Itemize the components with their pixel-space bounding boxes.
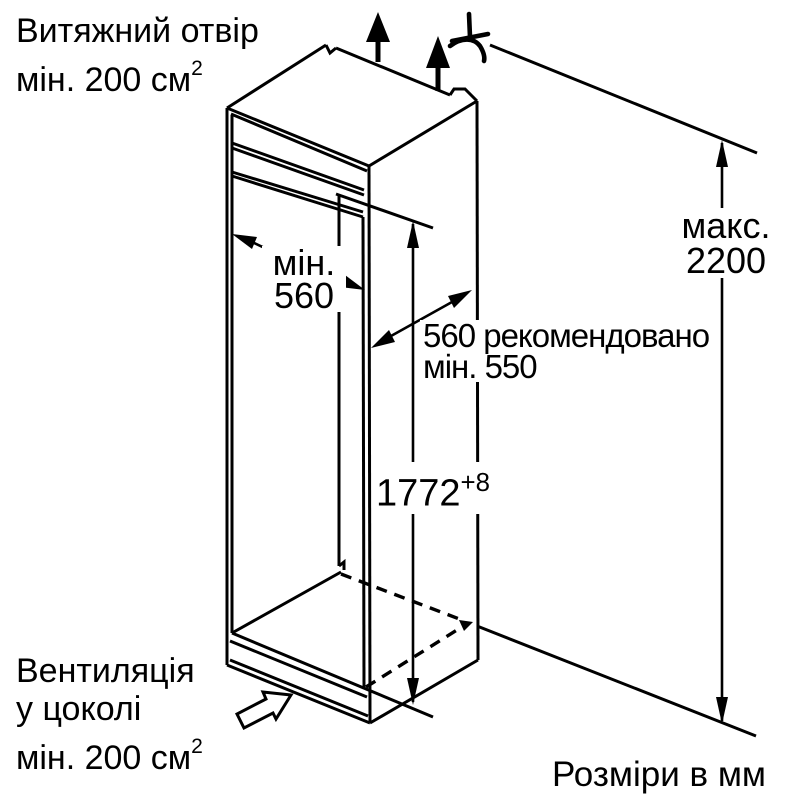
ventilation-block-arrow-icon	[237, 692, 291, 728]
top-face-back-left-notch	[326, 45, 336, 53]
front-bottom-outer-edge	[227, 665, 370, 723]
no-kink-icon	[450, 14, 488, 61]
installation-diagram: Витяжний отвір мін. 200 см2 мін. 560 560…	[0, 0, 800, 800]
plinth-vent-line3: мін. 200 см2	[16, 728, 203, 777]
label-niche-height: 1772+8	[372, 462, 494, 514]
niche-depth-line1: 560 рекомендовано	[423, 320, 709, 351]
top-face-front-edge	[227, 108, 369, 166]
no-kink-vertical-stroke	[469, 14, 470, 37]
squared-superscript: 2	[191, 735, 203, 758]
label-plinth-ventilation: Вентиляція у цоколі мін. 200 см2	[16, 652, 203, 777]
hidden-corner-arrowhead	[459, 620, 473, 631]
front-right-outer-edge	[369, 166, 370, 723]
width-arrow-left-icon	[232, 234, 257, 249]
no-kink-curve	[450, 40, 484, 61]
airflow-arrow-up-icon	[366, 12, 390, 42]
exhaust-opening-line1: Витяжний отвір	[16, 12, 259, 50]
interior-floor-left-edge	[232, 572, 341, 633]
label-niche-width: мін. 560	[262, 246, 346, 312]
niche-width-line2: 560	[262, 279, 346, 312]
exhaust-opening-line2: мін. 200 см2	[16, 50, 259, 99]
plinth-airflow	[237, 692, 291, 728]
label-exhaust-opening: Витяжний отвір мін. 200 см2	[16, 12, 259, 99]
front-right-inner-edge	[363, 217, 364, 688]
max-height-line2: 2200	[674, 243, 778, 278]
crossbar-bottom-line-a	[232, 172, 363, 212]
bottom-reference-line	[477, 626, 756, 736]
label-units-note: Розміри в мм	[552, 756, 766, 794]
label-max-height: макс. 2200	[674, 208, 778, 278]
depth-arrow-lower-icon	[371, 330, 395, 348]
niche-depth-line2: мін. 550	[423, 351, 709, 382]
niche-height-tolerance: +8	[461, 469, 490, 497]
top-face-back-right-notch	[450, 89, 477, 101]
top-reference-line	[490, 45, 757, 153]
plinth-vent-line1: Вентиляція	[16, 652, 203, 690]
reference-lines	[477, 45, 757, 736]
hidden-floor-back-edge	[341, 574, 462, 620]
top-face-right-edge	[369, 101, 477, 166]
squared-superscript: 2	[191, 57, 203, 80]
max-height-line1: макс.	[674, 208, 778, 243]
interior-ceiling-extension-line	[336, 194, 433, 228]
label-niche-depth: 560 рекомендовано мін. 550	[420, 320, 712, 382]
max-height-arrow-up-icon	[716, 140, 728, 167]
niche-height-value: 1772	[376, 472, 461, 514]
airflow-arrow-up-icon	[426, 36, 450, 68]
depth-arrow-upper-icon	[448, 290, 472, 308]
height-arrow-up-icon	[407, 221, 419, 248]
plinth-vent-line2: у цоколі	[16, 690, 203, 728]
front-top-inner-line	[231, 114, 367, 171]
